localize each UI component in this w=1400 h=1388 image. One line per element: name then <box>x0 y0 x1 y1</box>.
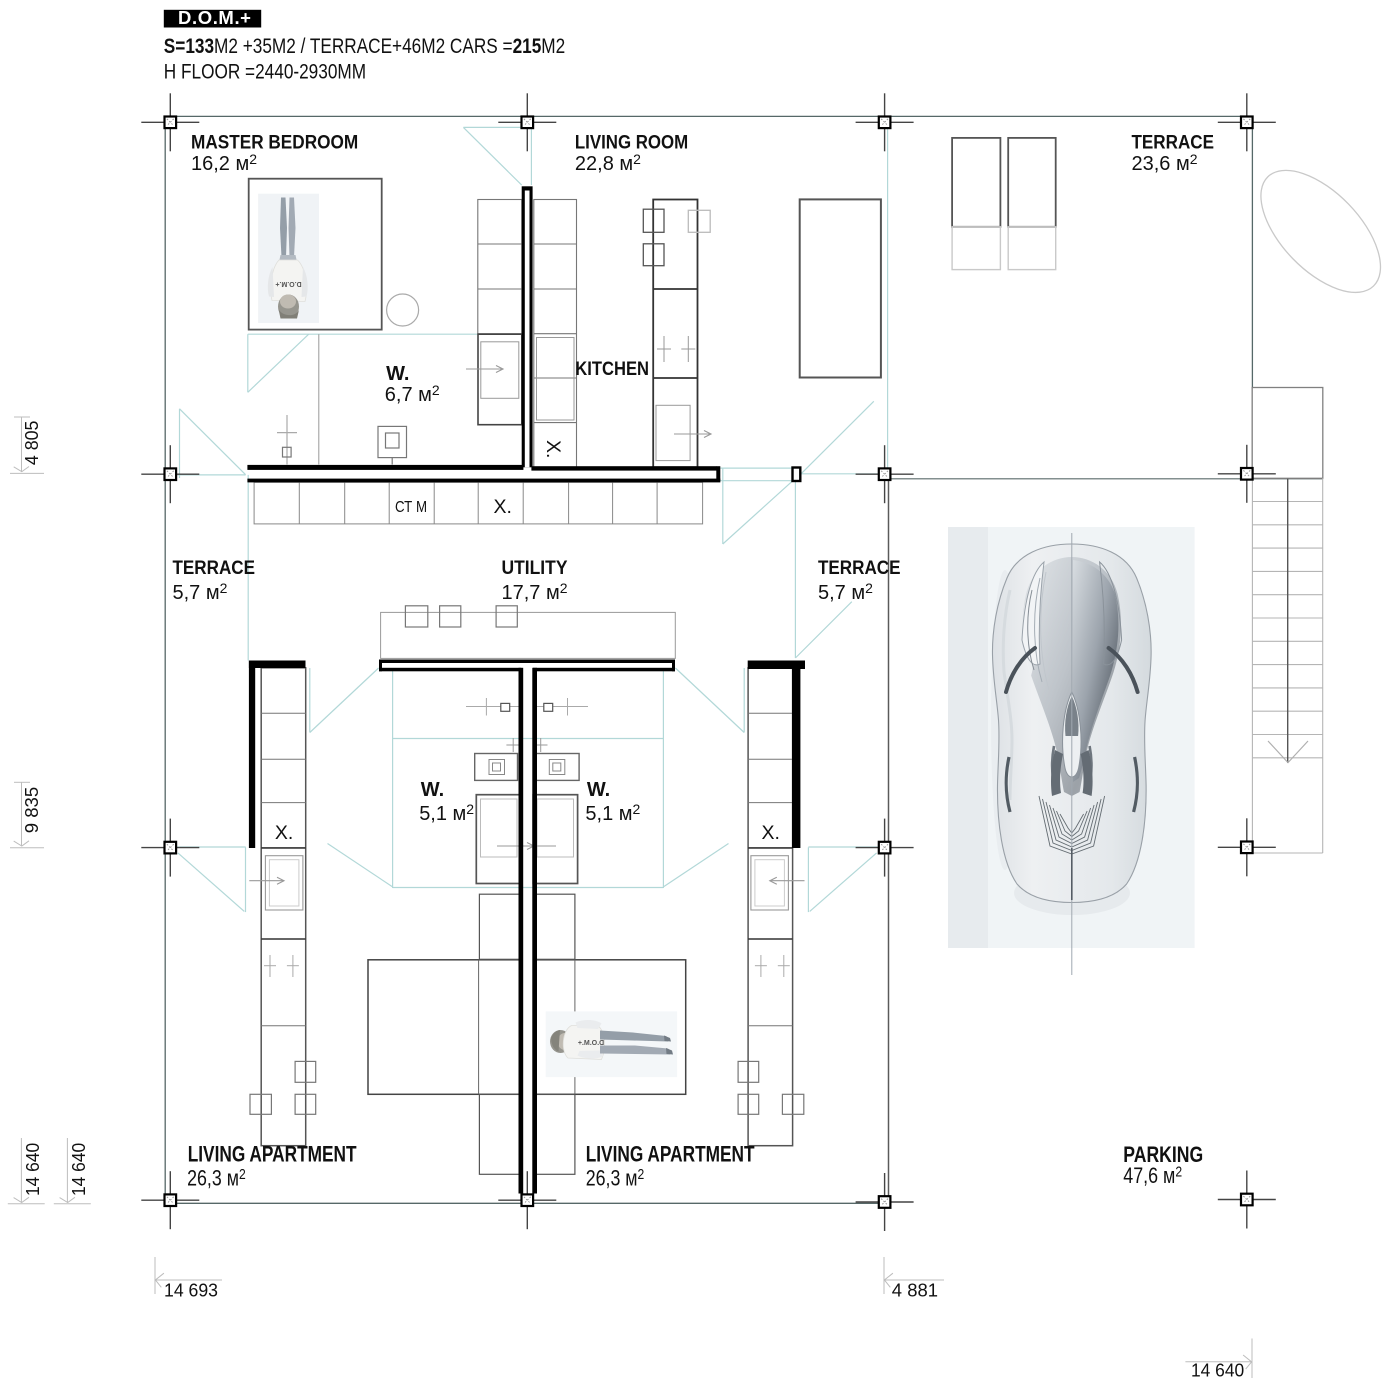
svg-text:14 640: 14 640 <box>68 1143 89 1196</box>
svg-text:TERRACE: TERRACE <box>1132 132 1215 153</box>
svg-text:5,7 м2: 5,7 м2 <box>173 580 228 604</box>
svg-text:LIVING APARTMENT: LIVING APARTMENT <box>188 1142 357 1167</box>
svg-text:UTILITY: UTILITY <box>502 558 568 579</box>
svg-text:6,7 м2: 6,7 м2 <box>385 382 440 406</box>
svg-text:16,2 м2: 16,2 м2 <box>191 151 257 175</box>
svg-text:LIVING APARTMENT: LIVING APARTMENT <box>586 1142 755 1167</box>
svg-text:KITCHEN: KITCHEN <box>575 359 649 380</box>
svg-text:W.: W. <box>421 779 444 801</box>
svg-text:W.: W. <box>587 779 610 801</box>
svg-text:X.: X. <box>494 496 512 518</box>
svg-text:X.: X. <box>542 440 564 458</box>
svg-text:TERRACE: TERRACE <box>173 558 256 579</box>
svg-text:47,6 м2: 47,6 м2 <box>1123 1163 1182 1188</box>
svg-text:9 835: 9 835 <box>21 787 42 834</box>
svg-text:14 640: 14 640 <box>1191 1360 1244 1381</box>
svg-text:17,7 м2: 17,7 м2 <box>502 580 568 604</box>
svg-text:LIVING ROOM: LIVING ROOM <box>575 132 688 153</box>
svg-text:D.O.M.+: D.O.M.+ <box>275 280 301 287</box>
svg-text:14 693: 14 693 <box>164 1280 218 1301</box>
svg-text:26,3 м2: 26,3 м2 <box>586 1166 645 1191</box>
svg-text:S=133M2 +35M2 / TERRACE+46M2 C: S=133M2 +35M2 / TERRACE+46M2 CARS =215M2 <box>164 36 565 59</box>
svg-text:X.: X. <box>762 822 780 844</box>
svg-text:14 640: 14 640 <box>22 1143 43 1196</box>
svg-text:W.: W. <box>386 363 409 385</box>
svg-text:5,7 м2: 5,7 м2 <box>818 580 873 604</box>
svg-text:26,3 м2: 26,3 м2 <box>187 1166 246 1191</box>
svg-text:4 881: 4 881 <box>892 1280 938 1301</box>
svg-text:СТ М: СТ М <box>395 499 427 516</box>
svg-text:4 805: 4 805 <box>21 421 42 466</box>
svg-text:X.: X. <box>275 822 293 844</box>
svg-text:5,1 м2: 5,1 м2 <box>419 801 474 825</box>
svg-text:H FLOOR =2440-2930MM: H FLOOR =2440-2930MM <box>164 61 366 84</box>
svg-text:22,8 м2: 22,8 м2 <box>575 151 641 175</box>
svg-text:TERRACE: TERRACE <box>818 558 901 579</box>
svg-text:D.O.M.+: D.O.M.+ <box>178 7 252 28</box>
svg-text:D.O.M.+: D.O.M.+ <box>578 1040 604 1047</box>
svg-text:23,6 м2: 23,6 м2 <box>1132 151 1198 175</box>
svg-text:MASTER BEDROOM: MASTER BEDROOM <box>191 132 358 153</box>
svg-text:5,1 м2: 5,1 м2 <box>585 801 640 825</box>
